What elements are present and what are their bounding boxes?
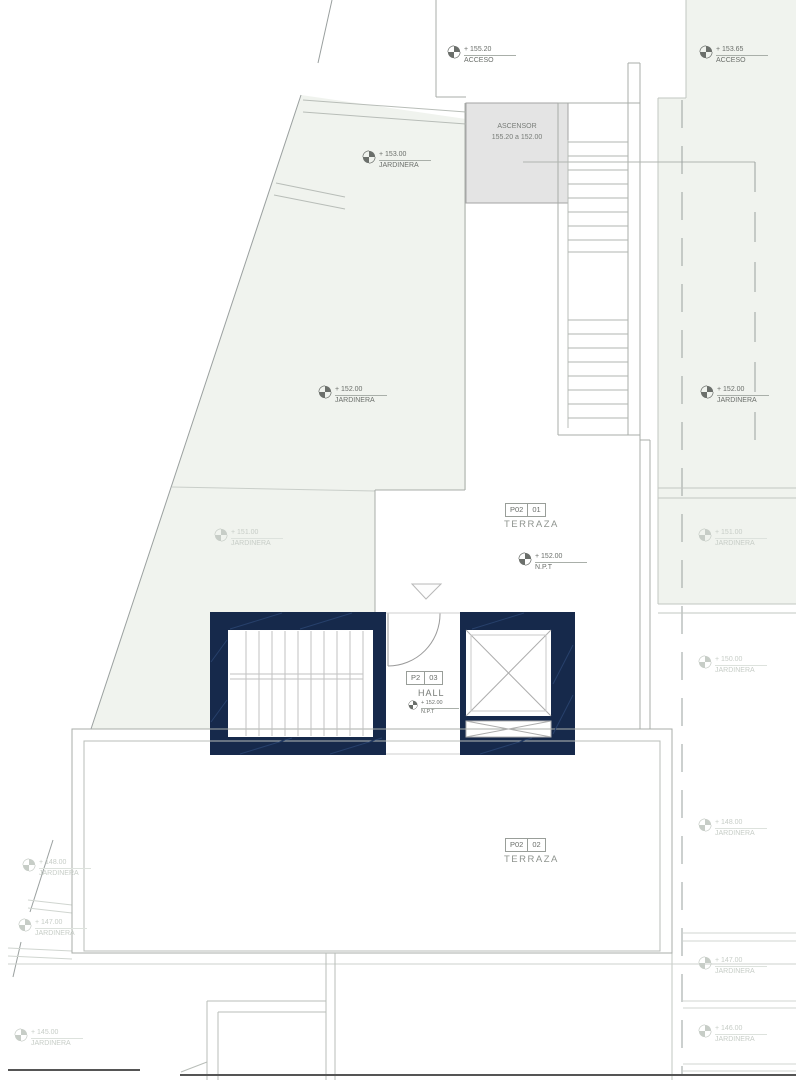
benchmark-icon xyxy=(700,385,714,399)
level-marker-jard-145-left: + 145.00 JARDINERA xyxy=(14,1028,83,1049)
level-marker-npt-terraza: + 152.00 N.P.T xyxy=(518,552,587,573)
benchmark-icon xyxy=(14,1028,28,1042)
level-elevation: + 152.00 xyxy=(335,385,387,396)
stair-treads-top xyxy=(568,142,628,418)
benchmark-icon xyxy=(698,528,712,542)
benchmark-icon xyxy=(214,528,228,542)
level-name: ACCESO xyxy=(716,56,768,65)
level-elevation: + 151.00 xyxy=(715,528,767,539)
level-elevation: + 150.00 xyxy=(715,655,767,666)
benchmark-icon xyxy=(699,45,713,59)
level-name: ACCESO xyxy=(464,56,516,65)
benchmark-icon xyxy=(447,45,461,59)
level-marker-jard-150-right: + 150.00 JARDINERA xyxy=(698,655,767,676)
level-elevation: + 148.00 xyxy=(39,858,91,869)
core-stair-well xyxy=(228,630,373,737)
level-elevation: + 155.20 xyxy=(464,45,516,56)
benchmark-icon xyxy=(698,1024,712,1038)
level-marker-jard-152-left: + 152.00 JARDINERA xyxy=(318,385,387,406)
right-garden-parcel xyxy=(658,0,796,604)
benchmark-icon xyxy=(318,385,332,399)
level-name: N.P.T xyxy=(421,709,459,716)
benchmark-icon xyxy=(362,150,376,164)
benchmark-icon xyxy=(698,818,712,832)
terraza02-outline xyxy=(72,729,672,953)
zone-name-hall: HALL xyxy=(418,688,445,698)
level-name: JARDINERA xyxy=(379,161,431,170)
level-name: JARDINERA xyxy=(715,539,767,548)
zone-name-terraza01: TERRAZA xyxy=(504,519,559,530)
zone-number: 01 xyxy=(528,504,544,516)
entry-arrow-marker xyxy=(412,584,441,599)
level-name: JARDINERA xyxy=(715,1035,767,1044)
level-marker-jard-151-right: + 151.00 JARDINERA xyxy=(698,528,767,549)
zone-code: P02 xyxy=(506,839,528,851)
level-marker-acceso-right: + 153.65 ACCESO xyxy=(699,45,768,66)
level-marker-npt-hall: + 152.00 N.P.T xyxy=(408,700,459,717)
benchmark-icon xyxy=(18,918,32,932)
level-name: JARDINERA xyxy=(335,396,387,405)
zone-code: P02 xyxy=(506,504,528,516)
level-elevation: + 153.65 xyxy=(716,45,768,56)
level-marker-jard-148-left: + 148.00 JARDINERA xyxy=(22,858,91,879)
level-elevation: + 146.00 xyxy=(715,1024,767,1035)
floor-plan-sheet: ASCENSOR 155.20 a 152.00 P02 01 TERRAZA … xyxy=(0,0,796,1080)
level-name: JARDINERA xyxy=(35,929,87,938)
zone-number: 02 xyxy=(528,839,544,851)
lower-garden-bands xyxy=(8,900,796,1071)
level-marker-jard-152-right: + 152.00 JARDINERA xyxy=(700,385,769,406)
level-elevation: + 147.00 xyxy=(715,956,767,967)
elevator-range: 155.20 a 152.00 xyxy=(466,132,568,143)
benchmark-icon xyxy=(408,700,418,710)
level-name: JARDINERA xyxy=(31,1039,83,1048)
level-name: JARDINERA xyxy=(39,869,91,878)
level-marker-jard-147-left: + 147.00 JARDINERA xyxy=(18,918,87,939)
level-name: JARDINERA xyxy=(717,396,769,405)
level-elevation: + 148.00 xyxy=(715,818,767,829)
level-marker-jard-146-right: + 146.00 JARDINERA xyxy=(698,1024,767,1045)
level-elevation: + 152.00 xyxy=(717,385,769,396)
level-name: N.P.T xyxy=(535,563,587,572)
benchmark-icon xyxy=(518,552,532,566)
level-elevation: + 145.00 xyxy=(31,1028,83,1039)
benchmark-icon xyxy=(22,858,36,872)
level-marker-jard-151-left: + 151.00 JARDINERA xyxy=(214,528,283,549)
level-name: JARDINERA xyxy=(715,829,767,838)
level-name: JARDINERA xyxy=(715,967,767,976)
level-marker-jard-147-right: + 147.00 JARDINERA xyxy=(698,956,767,977)
lower-structures xyxy=(181,953,335,1080)
lot-boundary-diagonal xyxy=(13,0,332,977)
level-elevation: + 152.00 xyxy=(421,700,459,709)
level-marker-jard-148-right: + 148.00 JARDINERA xyxy=(698,818,767,839)
core-elevator-shaft xyxy=(466,630,551,716)
level-elevation: + 153.00 xyxy=(379,150,431,161)
core-duct xyxy=(466,721,551,737)
level-marker-jard-153: + 153.00 JARDINERA xyxy=(362,150,431,171)
zone-name-terraza02: TERRAZA xyxy=(504,854,559,865)
level-marker-acceso-left: + 155.20 ACCESO xyxy=(447,45,516,66)
zone-number: 03 xyxy=(425,672,441,684)
right-terrace-bands xyxy=(658,488,796,1080)
benchmark-icon xyxy=(698,655,712,669)
elevator-label: ASCENSOR 155.20 a 152.00 xyxy=(466,121,568,143)
zone-box-terraza01: P02 01 xyxy=(505,503,546,517)
level-elevation: + 147.00 xyxy=(35,918,87,929)
elevator-shaft-top xyxy=(466,103,568,203)
level-elevation: + 151.00 xyxy=(231,528,283,539)
zone-box-terraza02: P02 02 xyxy=(505,838,546,852)
level-elevation: + 152.00 xyxy=(535,552,587,563)
site-edge-dark-line xyxy=(8,1070,796,1075)
zone-box-hall: P2 03 xyxy=(406,671,443,685)
zone-code: P2 xyxy=(407,672,425,684)
level-name: JARDINERA xyxy=(715,666,767,675)
elevator-name: ASCENSOR xyxy=(466,121,568,132)
level-name: JARDINERA xyxy=(231,539,283,548)
benchmark-icon xyxy=(698,956,712,970)
